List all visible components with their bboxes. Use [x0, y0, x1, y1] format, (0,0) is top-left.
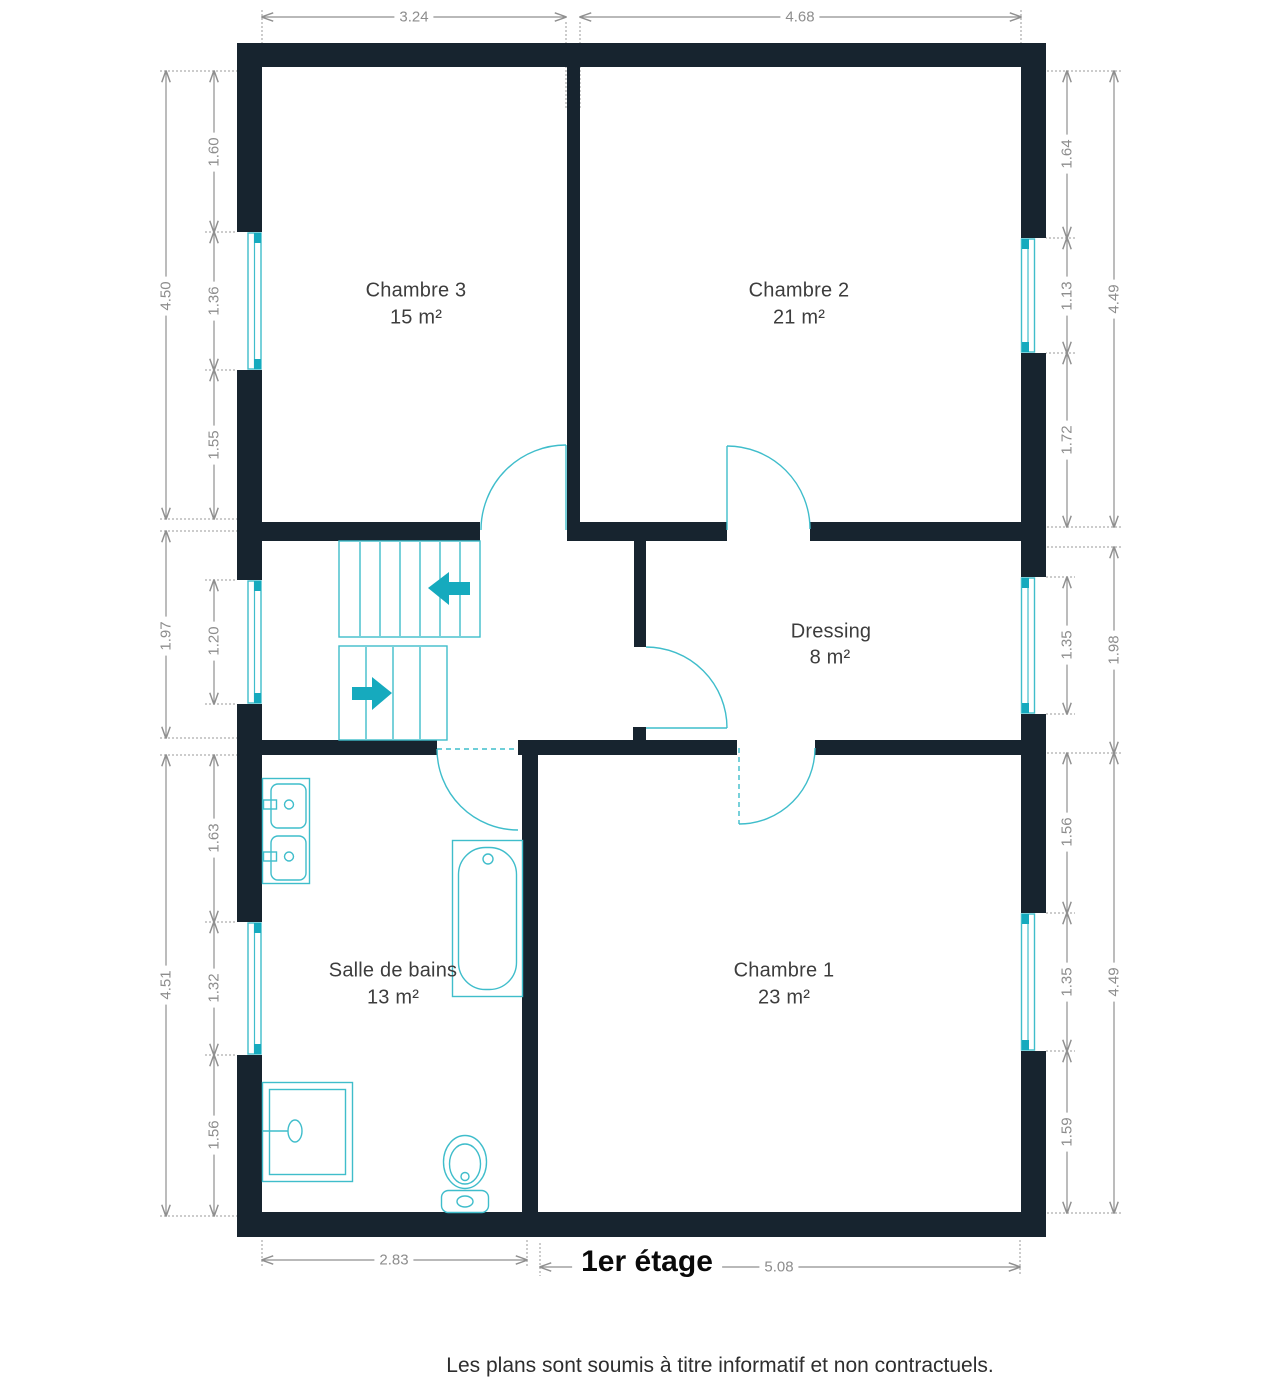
dim-right-outer-bottom: 4.49 — [1106, 962, 1123, 1001]
floor-plan: Chambre 3 15 m² Chambre 2 21 m² Dressing… — [0, 0, 1280, 1381]
door-dressing-icon — [646, 647, 727, 728]
dim-right-outer-mid: 1.98 — [1106, 630, 1123, 669]
double-sink-icon — [263, 779, 310, 884]
dim-top-right: 4.68 — [780, 9, 819, 26]
room-area-chambre1: 23 m² — [758, 987, 810, 1010]
window-hall-icon — [237, 580, 262, 704]
disclaimer-text: Les plans sont soumis à titre informatif… — [446, 1354, 993, 1378]
dim-left-bottom-3: 1.56 — [206, 1115, 223, 1154]
toilet-icon — [442, 1136, 489, 1213]
door-chambre2-icon — [727, 446, 810, 530]
floor-title: 1er étage — [572, 1245, 722, 1279]
window-chambre2-icon — [1021, 238, 1046, 353]
dim-right-bottom-3: 1.59 — [1059, 1112, 1076, 1151]
dim-left-outer-bottom: 4.51 — [158, 965, 175, 1004]
dim-left-bottom-2: 1.32 — [206, 968, 223, 1007]
room-label-chambre2: Chambre 2 — [749, 280, 850, 303]
room-area-dressing: 8 m² — [810, 647, 851, 670]
dim-right-top-2: 1.13 — [1059, 276, 1076, 315]
shower-icon — [263, 1083, 353, 1182]
door-chambre1-icon — [739, 748, 815, 824]
dim-bottom-right: 5.08 — [759, 1259, 798, 1276]
dim-right-bottom-1: 1.56 — [1059, 812, 1076, 851]
dim-right-top-3: 1.72 — [1059, 420, 1076, 459]
walls — [237, 43, 1046, 1237]
dim-left-outer-mid: 1.97 — [158, 616, 175, 655]
room-area-salle-de-bains: 13 m² — [367, 987, 419, 1010]
door-chambre3-icon — [481, 445, 566, 530]
dim-left-bottom-1: 1.63 — [206, 818, 223, 857]
dim-left-window-mid: 1.20 — [206, 621, 223, 660]
door-salle-de-bains-icon — [437, 749, 518, 830]
dim-right-bottom-2: 1.35 — [1059, 962, 1076, 1001]
doors — [437, 445, 815, 830]
dim-right-outer-top: 4.49 — [1106, 279, 1123, 318]
room-area-chambre2: 21 m² — [773, 307, 825, 330]
window-salle-de-bains-icon — [237, 922, 262, 1055]
room-area-chambre3: 15 m² — [390, 307, 442, 330]
window-chambre1-icon — [1021, 913, 1046, 1051]
bathtub-icon — [453, 841, 523, 997]
room-label-dressing: Dressing — [791, 621, 872, 644]
room-label-chambre3: Chambre 3 — [366, 280, 467, 303]
staircase — [339, 541, 480, 740]
floor-plan-canvas — [0, 0, 1280, 1381]
dim-right-window-mid: 1.35 — [1059, 625, 1076, 664]
dim-left-outer-top: 4.50 — [158, 276, 175, 315]
dim-left-top-1: 1.60 — [206, 132, 223, 171]
window-chambre3-icon — [237, 232, 262, 370]
dim-right-top-1: 1.64 — [1059, 134, 1076, 173]
dim-top-left: 3.24 — [394, 9, 433, 26]
dim-left-top-3: 1.55 — [206, 425, 223, 464]
window-dressing-icon — [1021, 577, 1046, 714]
dim-left-top-2: 1.36 — [206, 281, 223, 320]
dim-bottom-left: 2.83 — [374, 1252, 413, 1269]
room-label-salle-de-bains: Salle de bains — [329, 960, 457, 983]
room-label-chambre1: Chambre 1 — [734, 960, 835, 983]
